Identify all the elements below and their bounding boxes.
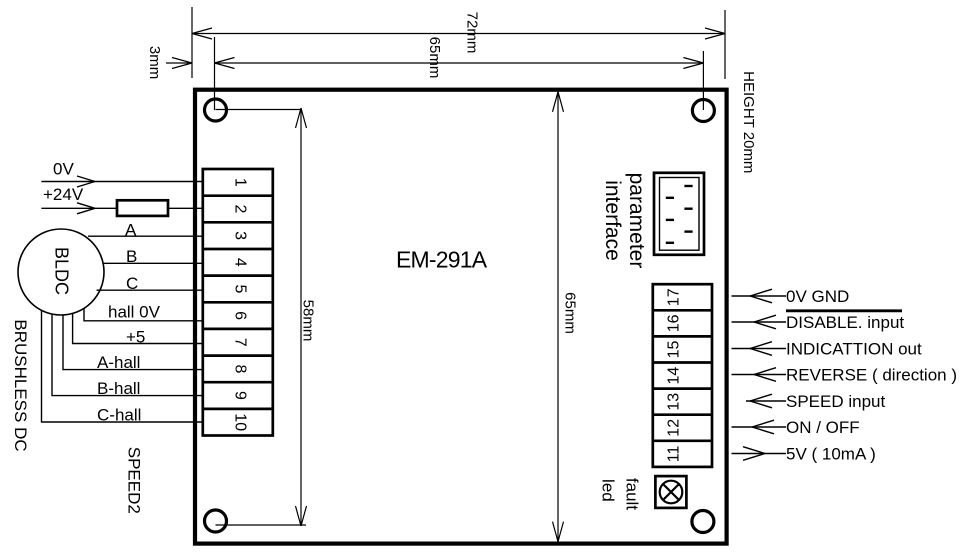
svg-text:SPEED input: SPEED input (786, 392, 885, 411)
svg-text:B: B (126, 247, 137, 266)
svg-text:EM-291A: EM-291A (396, 247, 488, 273)
svg-text:+24V: +24V (43, 185, 84, 204)
svg-text:14: 14 (666, 367, 683, 385)
svg-text:C-hall: C-hall (97, 406, 141, 425)
svg-text:72mm: 72mm (464, 12, 481, 54)
svg-text:2: 2 (231, 205, 248, 214)
svg-text:led: led (598, 479, 617, 502)
svg-text:58mm: 58mm (300, 300, 317, 342)
svg-text:C: C (126, 274, 138, 293)
svg-text:1: 1 (231, 178, 248, 187)
svg-text:DISABLE. input: DISABLE. input (786, 313, 904, 332)
svg-text:13: 13 (666, 393, 683, 411)
svg-text:ON / OFF: ON / OFF (786, 418, 860, 437)
svg-text:5V ( 10mA ): 5V ( 10mA ) (786, 445, 876, 464)
svg-text:3: 3 (231, 231, 248, 240)
svg-text:9: 9 (231, 391, 248, 400)
svg-text:8: 8 (231, 364, 248, 373)
svg-text:10: 10 (231, 413, 248, 431)
svg-text:15: 15 (666, 341, 683, 359)
svg-text:7: 7 (231, 338, 248, 347)
svg-text:3mm: 3mm (146, 46, 163, 79)
svg-text:BLDC: BLDC (52, 247, 72, 295)
svg-text:11: 11 (666, 445, 683, 462)
svg-text:4: 4 (231, 258, 248, 267)
svg-text:REVERSE ( direction ): REVERSE ( direction ) (786, 366, 957, 385)
svg-text:16: 16 (666, 314, 683, 332)
svg-text:parameter: parameter (625, 173, 648, 269)
svg-text:6: 6 (231, 311, 248, 320)
svg-text:SPEED2: SPEED2 (125, 447, 144, 514)
svg-text:0V: 0V (53, 160, 74, 179)
svg-text:fault: fault (623, 478, 642, 510)
svg-text:+5: +5 (126, 328, 145, 347)
svg-text:12: 12 (666, 419, 683, 437)
svg-text:HEIGHT 20mm: HEIGHT 20mm (740, 71, 757, 173)
svg-text:B-hall: B-hall (97, 379, 140, 398)
svg-text:0V GND: 0V GND (786, 287, 849, 306)
svg-text:A: A (125, 221, 137, 240)
svg-text:65mm: 65mm (426, 37, 443, 79)
svg-text:BRUSHLESS DC: BRUSHLESS DC (11, 319, 30, 451)
svg-text:5: 5 (231, 284, 248, 293)
svg-text:interface: interface (601, 180, 624, 261)
svg-text:hall 0V: hall 0V (108, 303, 161, 322)
svg-text:INDICATTION out: INDICATTION out (786, 340, 922, 359)
svg-text:65mm: 65mm (562, 292, 579, 334)
svg-text:A-hall: A-hall (97, 353, 140, 372)
svg-text:17: 17 (666, 288, 683, 306)
